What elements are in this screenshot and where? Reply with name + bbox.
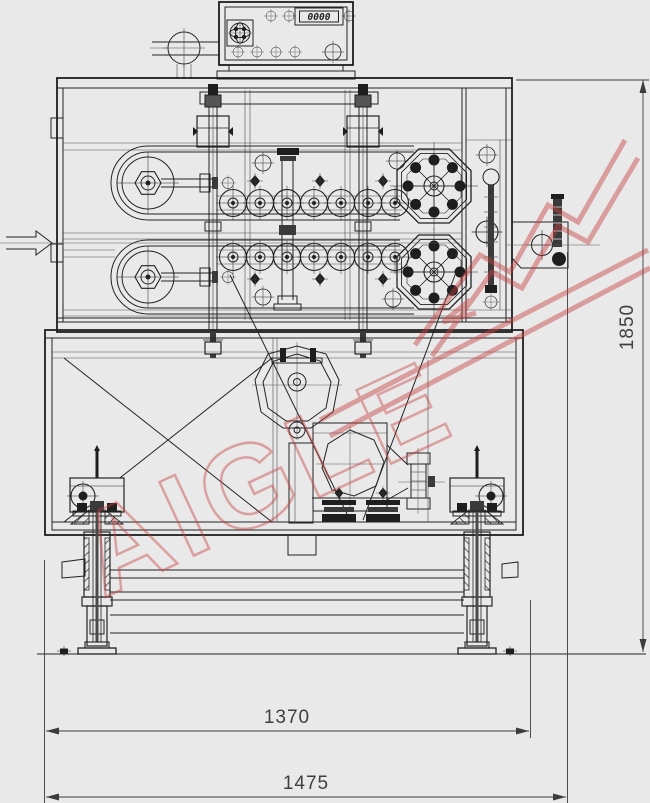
- globe-button: [227, 20, 253, 46]
- counter-display: 0000: [295, 8, 343, 25]
- top-clamp-beam: [200, 92, 378, 104]
- lower-track-assembly: [111, 228, 478, 316]
- star-wheel-upper: [390, 142, 478, 230]
- panel-button: [231, 45, 245, 59]
- dimension-height-label: 1850: [617, 304, 638, 350]
- panel-button: [269, 45, 283, 59]
- dimension-overall-width-label: 1475: [283, 773, 329, 794]
- screw-post-left: [193, 84, 233, 358]
- cable-port: [150, 28, 219, 79]
- upper-track-assembly: [111, 142, 478, 230]
- panel-button: [264, 9, 278, 23]
- right-gear-section: [466, 140, 512, 310]
- watermark: AIGLE: [58, 140, 650, 622]
- tag-left: [62, 559, 85, 578]
- machine-front-view-drawing: 0000: [0, 0, 650, 803]
- panel-button: [250, 45, 264, 59]
- feed-direction-arrow: [0, 231, 460, 255]
- panel-button: [282, 9, 296, 23]
- central-adjuster: [274, 148, 302, 310]
- control-panel: 0000: [217, 2, 356, 79]
- dimension-overall-height: 1850: [516, 80, 649, 652]
- display-value: 0000: [308, 12, 331, 23]
- panel-button: [288, 45, 302, 59]
- tag-right: [502, 562, 518, 578]
- leg-jack-right: [450, 445, 517, 656]
- screw-post-right: [343, 84, 383, 358]
- engineering-drawing-page: 0000: [0, 0, 650, 803]
- dimension-frame-width-label: 1370: [264, 707, 310, 728]
